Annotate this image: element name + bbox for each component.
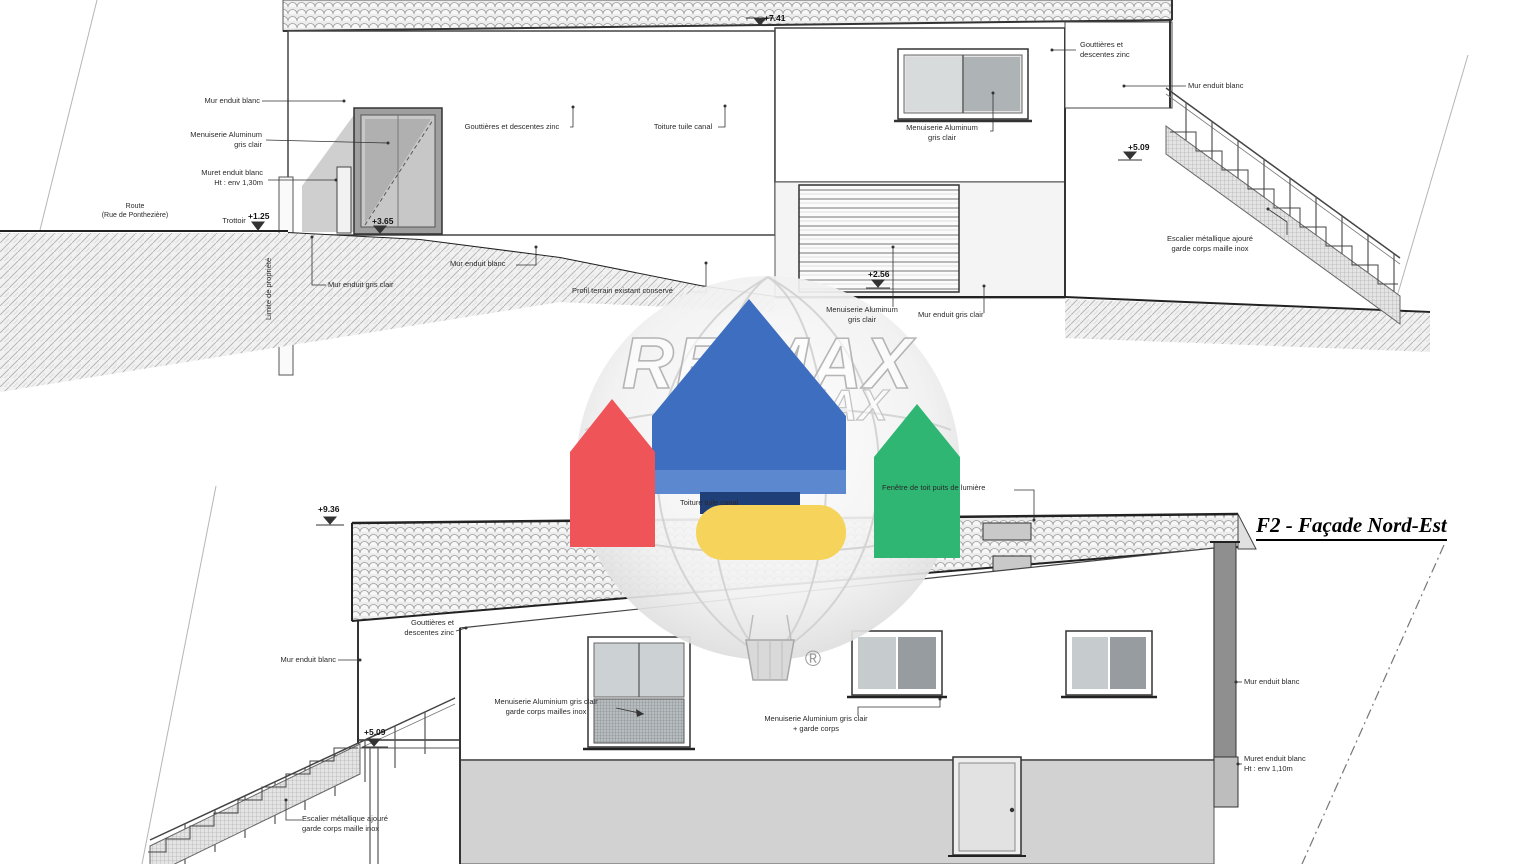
label-menuiserie-garde-corps: Menuiserie Aluminium gris clair + garde … [748, 714, 884, 734]
label-menuiserie-fenetre-droite: Menuiserie Aluminum gris clair [896, 123, 988, 143]
label-gouttieres-centre: Gouttières et descentes zinc [452, 122, 572, 132]
label-mur-enduit-blanc-droite: Mur enduit blanc [1188, 81, 1260, 91]
label-mur-blanc-gauche-bottom: Mur enduit blanc [268, 655, 336, 665]
label-mur-blanc-centre: Mur enduit blanc [450, 259, 518, 269]
level-stair-bottom: +5.09 [364, 727, 386, 737]
facade-title: F2 - Façade Nord-Est [1256, 513, 1447, 541]
remax-house-yellow-base [696, 505, 846, 560]
label-menuiserie-garage: Menuiserie Aluminum gris clair [818, 305, 906, 325]
level-stair-top: +5.09 [1128, 142, 1150, 152]
label-gouttieres-bottom: Gouttières et descentes zinc [392, 618, 454, 638]
skylight-1 [983, 523, 1031, 540]
entrance-door [354, 108, 442, 234]
level-sidewalk: +1.25 [248, 211, 270, 221]
earth-hatch-right [1065, 299, 1430, 352]
level-ridge-top: +7.41 [764, 13, 786, 23]
label-toiture-top: Toiture tuile canal [646, 122, 720, 132]
label-escalier-top: Escalier métallique ajouré garde corps m… [1126, 234, 1294, 254]
label-mur-gris-gauche: Mur enduit gris clair [328, 280, 410, 290]
window-2 [847, 631, 947, 697]
label-toiture-bottom: Toiture tuile canal [680, 498, 760, 508]
side-return-wall [1065, 22, 1172, 108]
label-limite-propriete: Limite de propriété [264, 258, 274, 320]
label-menuiserie-mailles: Menuiserie Aluminium gris clair garde co… [476, 697, 616, 717]
registered-trademark-icon: ® [805, 646, 821, 671]
remax-house-blue-band [652, 470, 846, 494]
window-mesh-guard [583, 637, 695, 749]
label-route: Route (Rue de Ponthezière) [92, 202, 178, 220]
basement-door [948, 757, 1026, 856]
label-mur-blanc-droite-bottom: Mur enduit blanc [1244, 677, 1316, 687]
staircase-left [148, 698, 455, 864]
level-garage: +2.56 [868, 269, 890, 279]
chimney-pillar [1214, 542, 1236, 760]
basement-wall [460, 760, 1214, 864]
label-mur-enduit-blanc-left: Mur enduit blanc [178, 96, 260, 106]
label-fenetre-toit: Fenêtre de toit puits de lumière [882, 483, 1014, 493]
label-profil-terrain: Profil terrain existant conservé [572, 286, 696, 296]
staircase-right [1166, 88, 1400, 324]
level-ridge-bottom: +9.36 [318, 504, 340, 514]
window-upper-right [894, 49, 1032, 121]
label-muret-droite: Muret enduit blanc Ht : env 1,10m [1244, 754, 1330, 774]
level-door: +3.65 [372, 216, 394, 226]
label-gouttieres-droite: Gouttières et descentes zinc [1080, 40, 1144, 60]
muret-right [1214, 757, 1238, 807]
label-mur-gris-droite: Mur enduit gris clair [918, 310, 998, 320]
muret-post [337, 167, 351, 233]
label-menuiserie-alu-left: Menuiserie Aluminum gris clair [162, 130, 262, 150]
label-muret-left: Muret enduit blanc Ht : env 1,30m [158, 168, 263, 188]
window-3 [1061, 631, 1157, 697]
architectural-elevation-sheet: RE/MAX RE/MAX ® +7.41 Mur enduit blanc M… [0, 0, 1536, 864]
label-escalier-bottom: Escalier métallique ajouré garde corps m… [302, 814, 438, 834]
